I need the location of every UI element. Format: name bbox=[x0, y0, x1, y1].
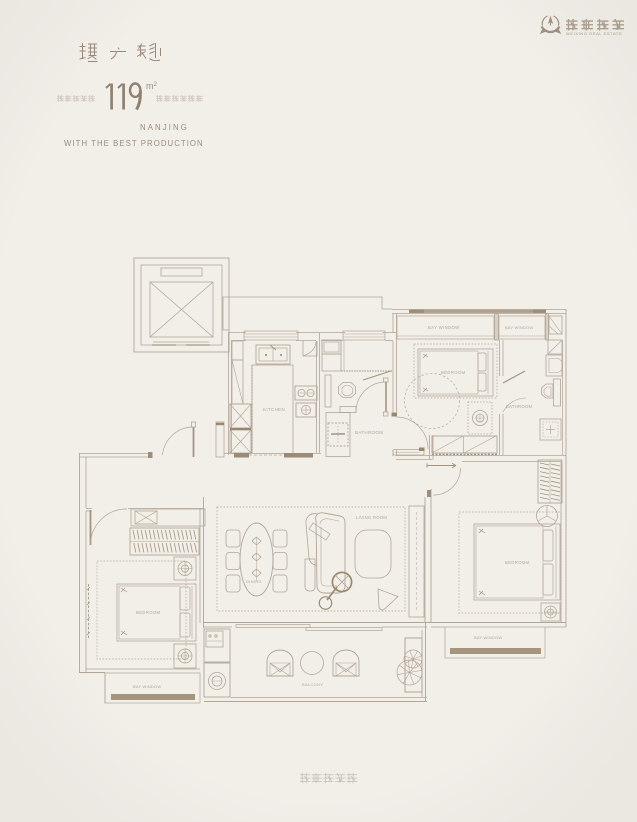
svg-text:BAY WINDOW: BAY WINDOW bbox=[474, 635, 502, 640]
svg-text:BEDROOM: BEDROOM bbox=[441, 370, 466, 375]
svg-text:KITCHEN: KITCHEN bbox=[263, 407, 285, 412]
svg-text:BALCONY: BALCONY bbox=[302, 682, 323, 687]
svg-text:BAY WINDOW: BAY WINDOW bbox=[133, 684, 161, 689]
svg-text:BATHROOM: BATHROOM bbox=[355, 430, 383, 435]
svg-text:BEDROOM: BEDROOM bbox=[505, 560, 530, 565]
svg-text:BAY WINDOW: BAY WINDOW bbox=[428, 325, 460, 330]
svg-text:BATHROOM: BATHROOM bbox=[506, 404, 532, 409]
svg-text:BAY WINDOW: BAY WINDOW bbox=[505, 325, 533, 330]
svg-text:DINING: DINING bbox=[246, 579, 262, 584]
svg-text:LIVING ROOM: LIVING ROOM bbox=[356, 515, 387, 520]
svg-text:BEDROOM: BEDROOM bbox=[136, 610, 161, 615]
